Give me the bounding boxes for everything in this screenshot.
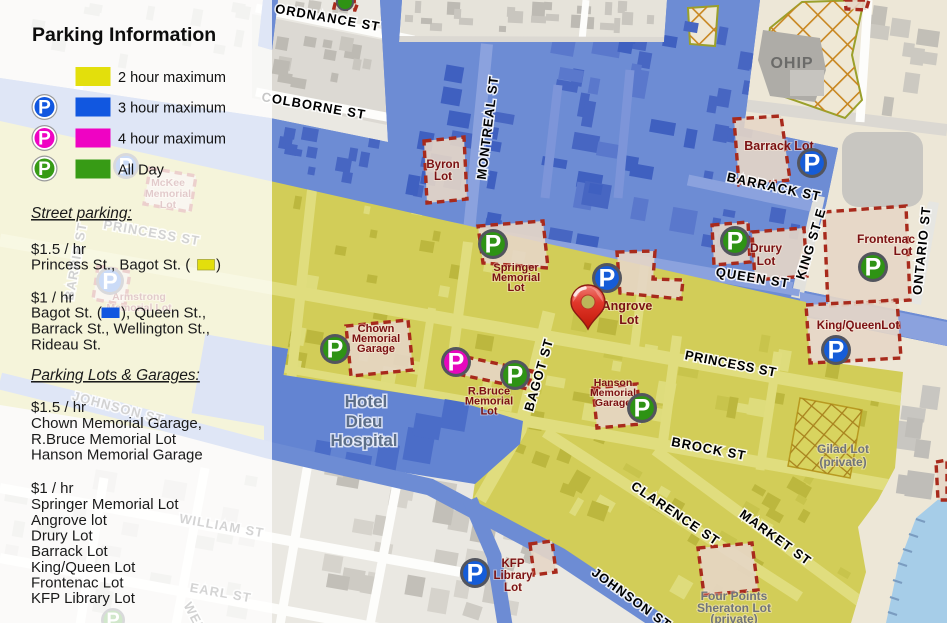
- svg-text:Lot: Lot: [507, 282, 524, 294]
- svg-text:P: P: [865, 253, 882, 281]
- svg-text:P: P: [485, 230, 502, 258]
- svg-text:Lot: Lot: [504, 582, 522, 594]
- svg-text:Angrove lot: Angrove lot: [31, 512, 108, 529]
- svg-text:Chown Memorial Garage,: Chown Memorial Garage,: [31, 415, 202, 432]
- svg-text:P: P: [599, 264, 616, 292]
- svg-text:Hospital: Hospital: [330, 431, 397, 450]
- svg-text:King/Queen Lot: King/Queen Lot: [31, 559, 136, 576]
- svg-text:$1 / hr: $1 / hr: [31, 480, 74, 497]
- svg-text:Hotel: Hotel: [345, 392, 388, 411]
- svg-text:P: P: [507, 361, 524, 389]
- svg-text:Lot: Lot: [894, 244, 913, 258]
- svg-text:2 hour maximum: 2 hour maximum: [118, 70, 226, 86]
- svg-text:Dieu: Dieu: [346, 412, 383, 431]
- svg-text:Rideau St.: Rideau St.: [31, 337, 101, 354]
- svg-text:All Day: All Day: [118, 163, 165, 179]
- svg-text:(private): (private): [710, 612, 757, 623]
- svg-text:Princess St., Bagot St. (: Princess St., Bagot St. (: [31, 257, 190, 274]
- svg-text:Lot: Lot: [619, 313, 639, 327]
- svg-text:King/QueenLot: King/QueenLot: [817, 320, 900, 332]
- svg-text:P: P: [727, 227, 744, 255]
- svg-text:P: P: [38, 129, 51, 150]
- svg-text:Gilad Lot: Gilad Lot: [817, 442, 869, 456]
- svg-text:P: P: [327, 335, 344, 363]
- svg-text:Library: Library: [494, 570, 534, 582]
- svg-text:P: P: [828, 336, 845, 364]
- svg-text:KFP: KFP: [502, 558, 525, 570]
- svg-text:Lot: Lot: [757, 254, 776, 268]
- svg-text:Frontenac Lot: Frontenac Lot: [31, 575, 124, 592]
- svg-text:KFP Library Lot: KFP Library Lot: [31, 590, 136, 607]
- svg-text:Hanson Memorial Garage: Hanson Memorial Garage: [31, 447, 203, 464]
- svg-text:Drury: Drury: [750, 241, 782, 255]
- svg-text:P: P: [467, 559, 484, 587]
- svg-text:Springer Memorial Lot: Springer Memorial Lot: [31, 496, 179, 513]
- svg-text:): ): [216, 257, 221, 274]
- svg-text:R.Bruce Memorial Lot: R.Bruce Memorial Lot: [31, 431, 177, 448]
- svg-text:4 hour maximum: 4 hour maximum: [118, 132, 226, 148]
- svg-text:Parking Information: Parking Information: [32, 24, 216, 46]
- svg-text:P: P: [804, 149, 821, 177]
- svg-text:Barrack St., Wellington St.,: Barrack St., Wellington St.,: [31, 321, 210, 338]
- svg-text:P: P: [38, 98, 51, 119]
- svg-text:Garage: Garage: [357, 343, 395, 355]
- svg-text:Street parking:: Street parking:: [31, 205, 132, 222]
- svg-text:$1.5 / hr: $1.5 / hr: [31, 241, 86, 258]
- svg-text:(private): (private): [819, 455, 866, 469]
- svg-text:P: P: [634, 394, 651, 422]
- svg-text:Lot: Lot: [480, 406, 497, 418]
- svg-text:Bagot St. (: Bagot St. (: [31, 305, 102, 322]
- svg-text:Barrack Lot: Barrack Lot: [31, 543, 109, 560]
- svg-text:Byron: Byron: [426, 159, 459, 171]
- svg-text:Angrove: Angrove: [602, 299, 653, 313]
- svg-text:), Queen St.,: ), Queen St.,: [121, 305, 206, 322]
- svg-text:OHIP: OHIP: [770, 55, 813, 72]
- svg-text:3 hour maximum: 3 hour maximum: [118, 101, 226, 117]
- svg-text:P: P: [38, 159, 51, 180]
- svg-text:$1.5 / hr: $1.5 / hr: [31, 399, 86, 416]
- svg-text:Garage: Garage: [595, 397, 631, 409]
- svg-text:Lot: Lot: [434, 171, 452, 183]
- svg-text:Drury Lot: Drury Lot: [31, 528, 94, 545]
- svg-text:P: P: [448, 348, 465, 376]
- svg-text:Parking Lots & Garages:: Parking Lots & Garages:: [31, 367, 200, 384]
